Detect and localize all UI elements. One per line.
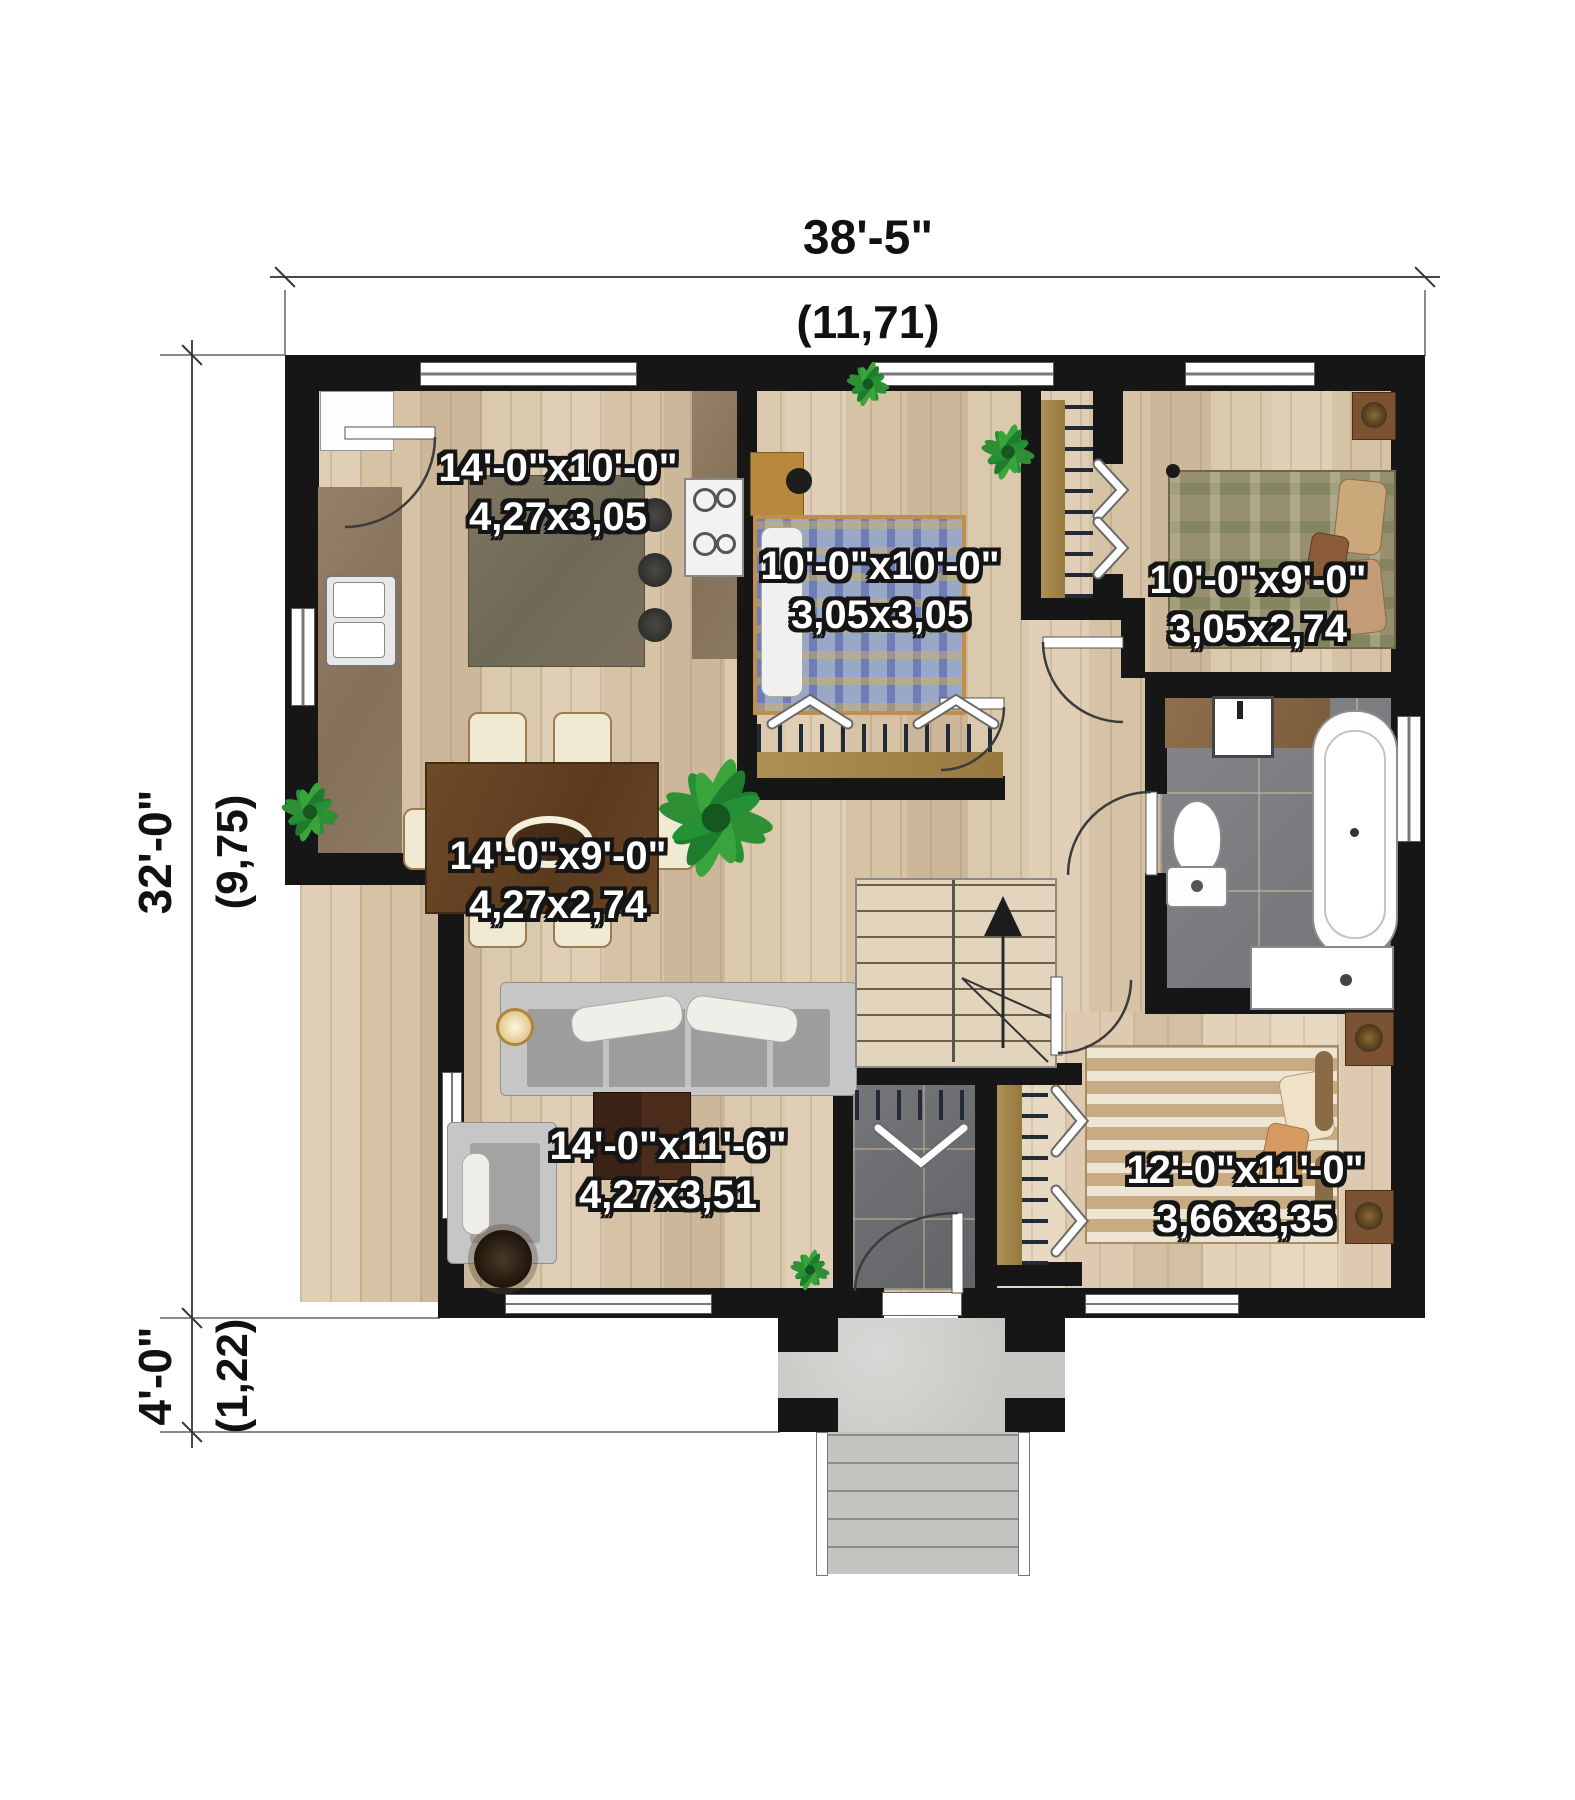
label-living-metric: 4,27x3,51: [579, 1171, 757, 1220]
bedroom3-door-swing: [1058, 980, 1131, 1053]
label-bedroom3-metric: 3,66x3,35: [1156, 1195, 1334, 1244]
stairs-break-line: [962, 978, 1051, 1018]
label-bedroom-bottom-right: 12'-0"x11'-0" 3,66x3,35: [1075, 1142, 1415, 1247]
plan-overlay: [0, 0, 1575, 1800]
plant-living: [790, 1249, 831, 1292]
bathroom-door-leaf: [1146, 792, 1157, 875]
stairs-arrow-head: [984, 896, 1022, 936]
front-door-swing: [855, 1213, 958, 1291]
floor-plan-canvas: 38'-5" (11,71) 32'-0" (9,75) 4'-0" (1,22…: [0, 0, 1575, 1800]
label-dining-imperial: 14'-0"x9'-0": [449, 832, 666, 881]
label-bedroom2-imperial: 10'-0"x9'-0": [1149, 556, 1366, 605]
label-bedroom1-imperial: 10'-0"x10'-0": [760, 542, 999, 591]
plant-top-wall: [846, 361, 890, 408]
label-living: 14'-0"x11'-6" 4,27x3,51: [498, 1118, 838, 1223]
stairs-break-line: [962, 978, 1048, 1062]
label-bedroom2-metric: 3,05x2,74: [1169, 605, 1347, 654]
plant-bedroom2: [980, 423, 1036, 482]
label-bedroom3-imperial: 12'-0"x11'-0": [1126, 1146, 1363, 1195]
label-dining: 14'-0"x9'-0" 4,27x2,74: [388, 828, 728, 933]
back-door-leaf: [345, 427, 435, 439]
label-bedroom1-metric: 3,05x3,05: [791, 591, 969, 640]
label-kitchen-imperial: 14'-0"x10'-0": [438, 444, 677, 493]
label-bedroom-top-right: 10'-0"x9'-0" 3,05x2,74: [1088, 552, 1428, 657]
label-bedroom-top-middle: 10'-0"x10'-0" 3,05x3,05: [710, 538, 1050, 643]
front-door-leaf: [952, 1213, 963, 1293]
label-kitchen-metric: 4,27x3,05: [469, 493, 647, 542]
label-dining-metric: 4,27x2,74: [469, 881, 647, 930]
label-living-imperial: 14'-0"x11'-6": [549, 1122, 786, 1171]
plant-left-wall: [280, 781, 339, 843]
bathroom-door-swing: [1068, 792, 1151, 875]
bedroom3-door-leaf: [1051, 977, 1062, 1055]
label-kitchen: 14'-0"x10'-0" 4,27x3,05: [388, 440, 728, 545]
